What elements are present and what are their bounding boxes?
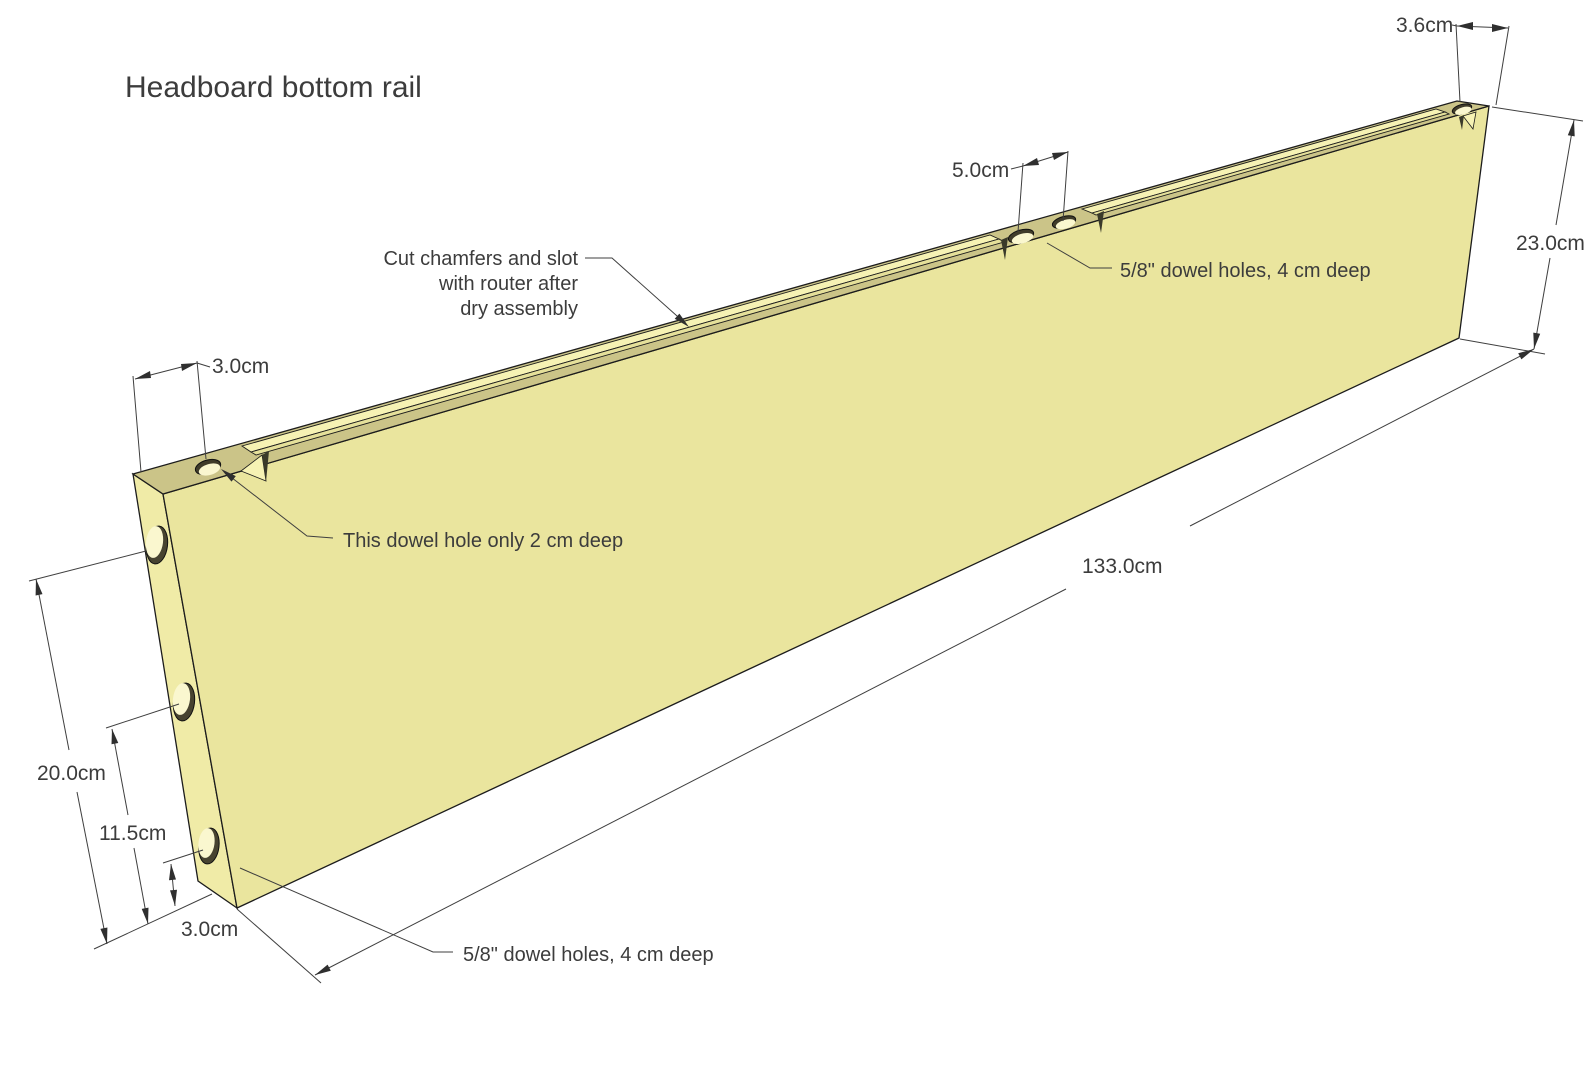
dim-label-end-hole-bottom: 3.0cm: [181, 918, 238, 941]
dim-label-board-height: 23.0cm: [1516, 232, 1585, 255]
drawing-title: Headboard bottom rail: [125, 71, 422, 104]
dim-label-board-length: 133.0cm: [1082, 555, 1163, 578]
note-dowel-holes-bottom: 5/8" dowel holes, 4 cm deep: [463, 944, 714, 966]
dim-label-left-tab: 3.0cm: [212, 355, 269, 378]
dim-label-right-tab: 3.6cm: [1396, 14, 1453, 37]
dim-label-mid-hole-spacing: 5.0cm: [952, 159, 1009, 182]
note-chamfer-line2: with router after: [438, 273, 578, 295]
drawing-canvas: Headboard bottom rail 3.6cm 5.0cm 3.0cm …: [0, 0, 1595, 1077]
note-shallow-hole: This dowel hole only 2 cm deep: [343, 530, 623, 552]
note-dowel-holes-top: 5/8" dowel holes, 4 cm deep: [1120, 260, 1371, 282]
note-chamfer-line1: Cut chamfers and slot: [383, 248, 578, 270]
drawing-page: Headboard bottom rail 3.6cm 5.0cm 3.0cm …: [0, 0, 1595, 1077]
dim-label-end-hole-mid: 11.5cm: [99, 822, 166, 845]
note-chamfer-line3: dry assembly: [460, 298, 578, 320]
dim-label-end-hole-top: 20.0cm: [37, 762, 106, 785]
